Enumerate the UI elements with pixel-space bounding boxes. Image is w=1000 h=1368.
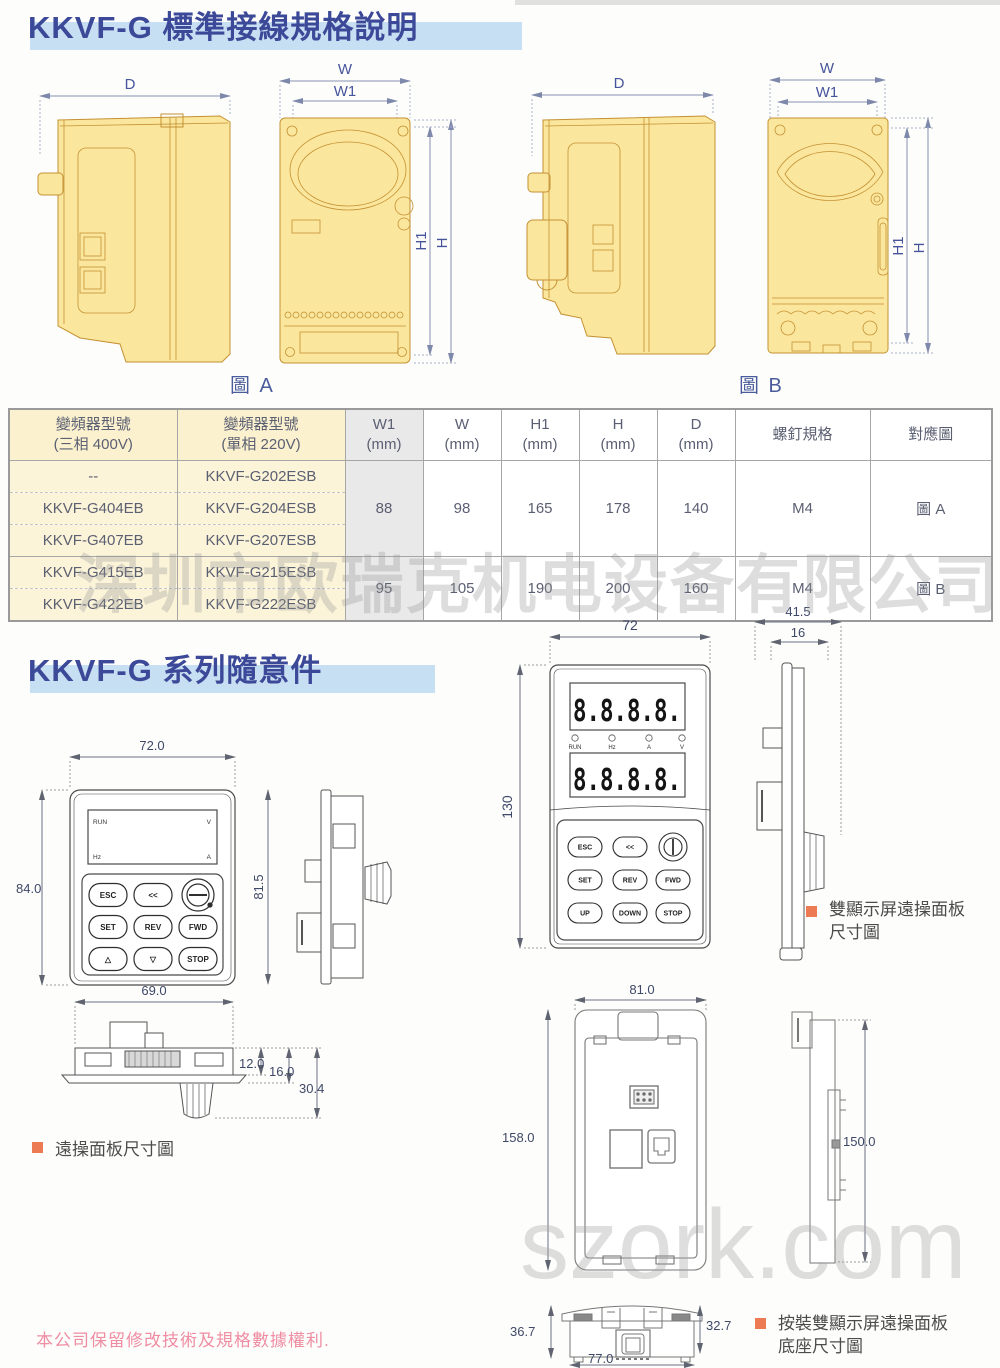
cell-h1: 165 bbox=[501, 461, 579, 557]
dim-label-41-5: 41.5 bbox=[785, 604, 810, 619]
dim-label-w: W bbox=[338, 61, 353, 78]
figure-b-caption: 圖 B bbox=[739, 375, 784, 397]
bullet-square-icon bbox=[806, 906, 817, 917]
col-header-fig: 對應圖 bbox=[870, 409, 992, 461]
up-label: UP bbox=[580, 911, 590, 918]
dim-label-d: D bbox=[614, 75, 625, 92]
run-indicator-label: RUN bbox=[569, 745, 582, 751]
col-header-h1: H1 (mm) bbox=[501, 409, 579, 461]
fwd-label: FWD bbox=[665, 878, 681, 885]
cell-model-220: KKVF-G204ESB bbox=[177, 493, 345, 525]
v-indicator-label: V bbox=[680, 745, 684, 751]
display-a-label: A bbox=[207, 854, 212, 861]
stop-label: STOP bbox=[664, 911, 683, 918]
remote-panel-drawing: 72.0 84.0 RUN Hz V A bbox=[15, 712, 485, 1137]
caption-line-2: 底座尺寸圖 bbox=[778, 1337, 863, 1356]
dim-label-w: W bbox=[820, 60, 835, 77]
cell-model-220: KKVF-G202ESB bbox=[177, 461, 345, 493]
figure-b-dim-h bbox=[891, 118, 935, 353]
display-2-value: 8.8.8.8. bbox=[573, 763, 681, 798]
dual-dim-left bbox=[520, 665, 548, 948]
dim-label-h: H bbox=[434, 238, 451, 249]
figure-a-drawing: D W bbox=[18, 56, 498, 404]
datasheet-page: KKVF-G 標準接線規格說明 D bbox=[0, 0, 1000, 1368]
cell-model-400: KKVF-G404EB bbox=[9, 493, 177, 525]
cell-model-400: KKVF-G415EB bbox=[9, 557, 177, 589]
header-line: (mm) bbox=[658, 435, 735, 455]
caption-line-2: 尺寸圖 bbox=[829, 923, 880, 942]
col-header-model-400: 變頻器型號 (三相 400V) bbox=[9, 409, 177, 461]
base-caption: 按裝雙顯示屏遠操面板 底座尺寸圖 bbox=[755, 1312, 985, 1358]
dim-label-69: 69.0 bbox=[141, 983, 166, 998]
display-run-label: RUN bbox=[93, 819, 107, 826]
figure-b-front-view bbox=[768, 118, 888, 353]
header-line: (三相 400V) bbox=[10, 435, 177, 455]
set-label: SET bbox=[100, 923, 116, 932]
remote-panel-caption-text: 遠操面板尺寸圖 bbox=[55, 1138, 174, 1161]
display-hz-label: Hz bbox=[93, 854, 101, 861]
dim-label-12: 12.0 bbox=[239, 1056, 264, 1071]
down-label: DOWN bbox=[619, 911, 641, 918]
header-line: (mm) bbox=[346, 435, 423, 455]
esc-label: ESC bbox=[100, 891, 117, 900]
side-knob-icon bbox=[804, 832, 824, 892]
base-side-view bbox=[792, 1012, 846, 1263]
header-line: (mm) bbox=[502, 435, 579, 455]
cell-d: 140 bbox=[657, 461, 735, 557]
dim-label-72: 72.0 bbox=[139, 738, 164, 753]
remote-dim-top bbox=[70, 757, 235, 788]
bullet-square-icon bbox=[755, 1318, 766, 1329]
cell-fig: 圖 A bbox=[870, 461, 992, 557]
cell-w: 105 bbox=[423, 557, 501, 622]
display-1-value: 8.8.8.8. bbox=[573, 694, 681, 729]
down-label: ▽ bbox=[149, 955, 157, 964]
caption-line-1: 按裝雙顯示屏遠操面板 bbox=[778, 1314, 948, 1333]
figure-b-drawing: D W W1 bbox=[505, 56, 995, 404]
remote-dim-left bbox=[42, 790, 68, 985]
set-label: SET bbox=[578, 878, 592, 885]
dim-label-16: 16.0 bbox=[269, 1064, 294, 1079]
cell-model-400: KKVF-G422EB bbox=[9, 589, 177, 622]
dim-label-84: 84.0 bbox=[16, 881, 41, 896]
remote-bottom-profile bbox=[62, 1022, 246, 1118]
col-header-d: D (mm) bbox=[657, 409, 735, 461]
cell-model-400: -- bbox=[9, 461, 177, 493]
header-line: W bbox=[424, 415, 501, 435]
dim-label-w1: W1 bbox=[334, 83, 357, 100]
dim-label-158: 158.0 bbox=[502, 1130, 535, 1145]
caption-line-1: 雙顯示屏遠操面板 bbox=[829, 900, 965, 919]
cell-w1: 88 bbox=[345, 461, 423, 557]
rev-label: REV bbox=[623, 878, 638, 885]
header-line: D bbox=[658, 415, 735, 435]
section2-title: KKVF-G 系列隨意件 bbox=[28, 645, 458, 697]
footer-note: 本公司保留修改技術及規格數據權利. bbox=[36, 1326, 330, 1351]
dim-label-d: D bbox=[125, 76, 136, 93]
cell-screw: M4 bbox=[735, 461, 870, 557]
back-label: << bbox=[626, 845, 634, 852]
stop-label: STOP bbox=[187, 955, 209, 964]
dim-label-h: H bbox=[911, 243, 928, 254]
knob-icon bbox=[182, 879, 214, 911]
dim-label-h1: H1 bbox=[890, 236, 907, 255]
cell-w: 98 bbox=[423, 461, 501, 557]
dim-label-81: 81.0 bbox=[629, 982, 654, 997]
base-caption-text: 按裝雙顯示屏遠操面板 底座尺寸圖 bbox=[778, 1312, 948, 1358]
bottom-knob-icon bbox=[180, 1083, 213, 1118]
dim-label-150: 150.0 bbox=[843, 1134, 876, 1149]
col-header-model-220: 變頻器型號 (單相 220V) bbox=[177, 409, 345, 461]
header-line: (mm) bbox=[424, 435, 501, 455]
header-line: H bbox=[580, 415, 657, 435]
col-header-w1: W1 (mm) bbox=[345, 409, 423, 461]
dim-label-81-5: 81.5 bbox=[251, 874, 266, 899]
cell-w1: 95 bbox=[345, 557, 423, 622]
header-line: H1 bbox=[502, 415, 579, 435]
dual-panel-caption-text: 雙顯示屏遠操面板 尺寸圖 bbox=[829, 898, 965, 944]
cell-h: 178 bbox=[579, 461, 657, 557]
rev-label: REV bbox=[145, 923, 162, 932]
fwd-label: FWD bbox=[189, 923, 207, 932]
knob-icon bbox=[659, 833, 687, 861]
hz-indicator-label: Hz bbox=[608, 745, 615, 751]
figure-a-caption: 圖 A bbox=[230, 375, 275, 397]
dual-panel-caption: 雙顯示屏遠操面板 尺寸圖 bbox=[806, 898, 996, 944]
figure-a-front-view bbox=[280, 118, 413, 363]
dim-label-130: 130 bbox=[499, 795, 515, 819]
col-header-screw: 螺釘規格 bbox=[735, 409, 870, 461]
dim-label-77: 77.0 bbox=[588, 1351, 613, 1366]
remote-panel-caption: 遠操面板尺寸圖 bbox=[32, 1138, 174, 1161]
display-v-label: V bbox=[207, 819, 212, 826]
figure-a-side-view bbox=[38, 114, 230, 362]
section1-title-text: KKVF-G 標準接線規格說明 bbox=[28, 2, 548, 47]
back-label: << bbox=[148, 891, 158, 900]
section1-title: KKVF-G 標準接線規格說明 bbox=[28, 2, 548, 54]
header-line: (mm) bbox=[580, 435, 657, 455]
esc-label: ESC bbox=[578, 845, 592, 852]
cell-model-220: KKVF-G215ESB bbox=[177, 557, 345, 589]
dim-label-16: 16 bbox=[791, 625, 805, 640]
scan-edge-artifact bbox=[515, 0, 1000, 5]
dim-label-h1: H1 bbox=[413, 231, 430, 250]
dim-label-72: 72 bbox=[622, 617, 638, 633]
header-line: 變頻器型號 bbox=[178, 415, 345, 435]
header-line: 變頻器型號 bbox=[10, 415, 177, 435]
up-label: △ bbox=[104, 955, 112, 964]
col-header-w: W (mm) bbox=[423, 409, 501, 461]
col-header-h: H (mm) bbox=[579, 409, 657, 461]
bullet-square-icon bbox=[32, 1142, 43, 1153]
section2-title-text: KKVF-G 系列隨意件 bbox=[28, 645, 458, 690]
dual-dim-top bbox=[550, 637, 710, 663]
header-line: W1 bbox=[346, 415, 423, 435]
figure-b-side-view bbox=[527, 116, 715, 354]
cell-model-220: KKVF-G222ESB bbox=[177, 589, 345, 622]
dim-label-32-7: 32.7 bbox=[706, 1318, 731, 1333]
table-row: KKVF-G415EB KKVF-G215ESB 95 105 190 200 … bbox=[9, 557, 992, 589]
base-bottom-view bbox=[562, 1306, 702, 1362]
cell-model-400: KKVF-G407EB bbox=[9, 525, 177, 557]
spec-table: 變頻器型號 (三相 400V) 變頻器型號 (單相 220V) W1 (mm) … bbox=[8, 408, 993, 622]
side-knob-icon bbox=[365, 862, 391, 904]
cell-model-220: KKVF-G207ESB bbox=[177, 525, 345, 557]
dim-label-30-4: 30.4 bbox=[299, 1081, 324, 1096]
remote-side-view bbox=[297, 790, 391, 984]
dim-label-36-7: 36.7 bbox=[510, 1324, 535, 1339]
a-indicator-label: A bbox=[647, 745, 651, 751]
base-front-view bbox=[575, 1010, 706, 1270]
header-line: (單相 220V) bbox=[178, 435, 345, 455]
table-row: -- KKVF-G202ESB 88 98 165 178 140 M4 圖 A bbox=[9, 461, 992, 493]
dim-label-w1: W1 bbox=[816, 84, 839, 101]
table-header-row: 變頻器型號 (三相 400V) 變頻器型號 (單相 220V) W1 (mm) … bbox=[9, 409, 992, 461]
base-drawing: 81.0 158.0 bbox=[498, 978, 1000, 1368]
